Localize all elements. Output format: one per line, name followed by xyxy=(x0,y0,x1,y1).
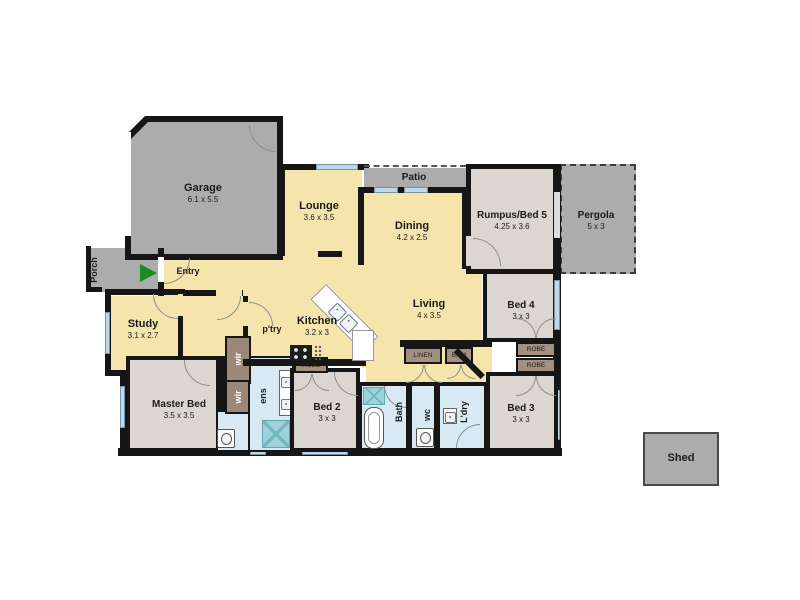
garage-label: Garage 6.1 x 5.5 xyxy=(163,182,243,204)
shower-icon xyxy=(262,420,290,448)
window xyxy=(105,312,110,354)
garage-door-opening xyxy=(125,132,131,236)
toilet-icon xyxy=(217,429,235,448)
pantry-door-opening xyxy=(243,302,248,326)
pantry-label: p'try xyxy=(250,324,294,334)
brm-label: BRM xyxy=(445,347,473,364)
pergola-label: Pergola 5 x 3 xyxy=(561,210,631,231)
wall xyxy=(318,251,342,257)
patio-boundary-dashed xyxy=(364,165,466,167)
rumpus-door-opening xyxy=(466,236,472,266)
sink-icon xyxy=(445,412,456,423)
lounge-label: Lounge 3.6 x 3.5 xyxy=(284,200,354,222)
master-label: Master Bed 3.5 x 3.5 xyxy=(134,399,224,420)
linen-label: LINEN xyxy=(404,347,442,364)
patio-label: Patio xyxy=(384,172,444,184)
bathtub-icon xyxy=(364,407,384,449)
window xyxy=(404,187,428,193)
robe-bed2-label: ROBE xyxy=(294,357,328,373)
shed-label: Shed xyxy=(651,452,711,465)
wall xyxy=(358,187,364,265)
wc-label: wc xyxy=(420,395,434,435)
floor-plan: Porch Garage 6.1 x 5.5 Entry Lounge 3.6 … xyxy=(0,0,800,600)
wall xyxy=(400,340,492,347)
bath-label: Bath xyxy=(392,392,406,432)
bed3-label: Bed 3 3 x 3 xyxy=(491,403,551,424)
study-door-opening xyxy=(178,294,183,316)
robe-bed3-label: ROBE xyxy=(516,358,556,373)
hall-bed4-floor xyxy=(466,268,482,344)
porch-label: Porch xyxy=(87,250,101,290)
window xyxy=(316,164,358,170)
entry-arrow-icon xyxy=(140,264,157,282)
laundry-label: L'dry xyxy=(457,392,471,432)
bed2-label: Bed 2 3 x 3 xyxy=(297,402,357,423)
rumpus-label: Rumpus/Bed 5 4.25 x 3.6 xyxy=(467,210,557,231)
wir-lower-label: wir xyxy=(231,377,245,417)
entry-label: Entry xyxy=(163,266,213,276)
laundry-trough xyxy=(443,408,457,424)
kitchen-bench xyxy=(352,330,374,361)
robe-bed4-label: ROBE xyxy=(516,342,556,357)
dining-label: Dining 4.2 x 2.5 xyxy=(377,220,447,242)
bed4-label: Bed 4 3 x 3 xyxy=(491,300,551,321)
shower-icon xyxy=(363,387,385,405)
wir-upper-label: wir xyxy=(231,339,245,379)
ens-label: ens xyxy=(256,376,270,416)
window xyxy=(120,386,125,428)
study-label: Study 3.1 x 2.7 xyxy=(113,318,173,340)
living-label: Living 4 x 3.5 xyxy=(394,298,464,320)
window xyxy=(374,187,398,193)
